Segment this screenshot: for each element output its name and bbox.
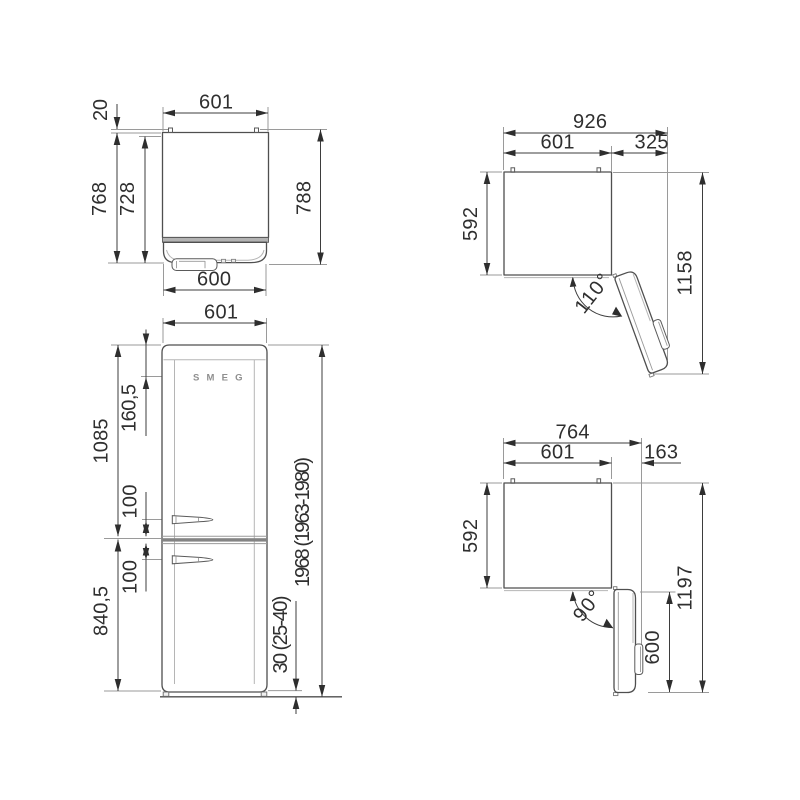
cabinet-open-90	[504, 483, 612, 588]
dim-label-front-width: 601	[204, 302, 238, 324]
dim-label-body-width-90: 601	[541, 441, 575, 463]
dim-label-door-width: 600	[197, 269, 231, 291]
dim-label-depth-total: 788	[294, 181, 316, 215]
dim-label-door-swing-90: 163	[644, 441, 678, 463]
dim-label-lower-section: 840,5	[91, 586, 113, 636]
dim-label-total-height: 1968 (1963-1980)	[292, 457, 314, 587]
refrigerator-dimension-drawing: 601 20 768 728 788 600 SMEG	[0, 0, 800, 800]
cabinet-top-view	[163, 133, 269, 238]
dim-label-total-depth-90: 1197	[675, 566, 697, 611]
brand-logo: SMEG	[193, 373, 250, 384]
dim-label-depth-110: 592	[460, 207, 482, 241]
dim-label-depth-90: 592	[460, 519, 482, 553]
door-open-90	[614, 587, 643, 696]
dim-label-total-depth-110: 1158	[675, 251, 697, 296]
dim-label-body-width-110: 601	[541, 131, 575, 153]
view-open-90: 90° 764 601 163 592 600 1197	[460, 421, 709, 695]
dim-label-handle-top: 100	[120, 485, 142, 519]
door-gasket	[163, 238, 269, 243]
dim-label-feet: 30 (25-40)	[270, 596, 292, 674]
dim-label-door-swing-110: 325	[635, 131, 669, 153]
dim-label-total-width-90: 764	[556, 421, 590, 443]
rear-spacer-left	[169, 128, 173, 133]
dim-label-total-width-110: 926	[573, 111, 607, 133]
foot-left	[163, 692, 169, 696]
dim-label-hinge: 20	[90, 99, 112, 121]
view-front: SMEG 601 160,5 1085 100 100 840,5 1968 (…	[91, 302, 343, 715]
view-open-110: 110° 926 601 325 592 1158	[460, 111, 709, 377]
view-top-closed: 601 20 768 728 788 600	[89, 92, 327, 297]
cabinet-open-110	[504, 172, 612, 275]
door-divider	[162, 538, 267, 541]
drawing-canvas: 601 20 768 728 788 600 SMEG	[0, 0, 800, 800]
angle-label-90: 90°	[569, 587, 607, 627]
foot-right	[261, 692, 267, 696]
dim-label-handle-bottom: 100	[120, 560, 142, 594]
dim-label-upper-section: 1085	[91, 419, 113, 464]
dim-label-depth-inner: 728	[117, 182, 139, 216]
angle-label-110: 110°	[571, 270, 615, 318]
dim-label-width: 601	[199, 92, 233, 114]
dim-label-door-length-90: 600	[642, 631, 664, 665]
rear-spacer-right	[255, 128, 259, 133]
dim-label-depth-body: 768	[89, 182, 111, 216]
dim-label-logo-offset: 160,5	[119, 384, 141, 432]
